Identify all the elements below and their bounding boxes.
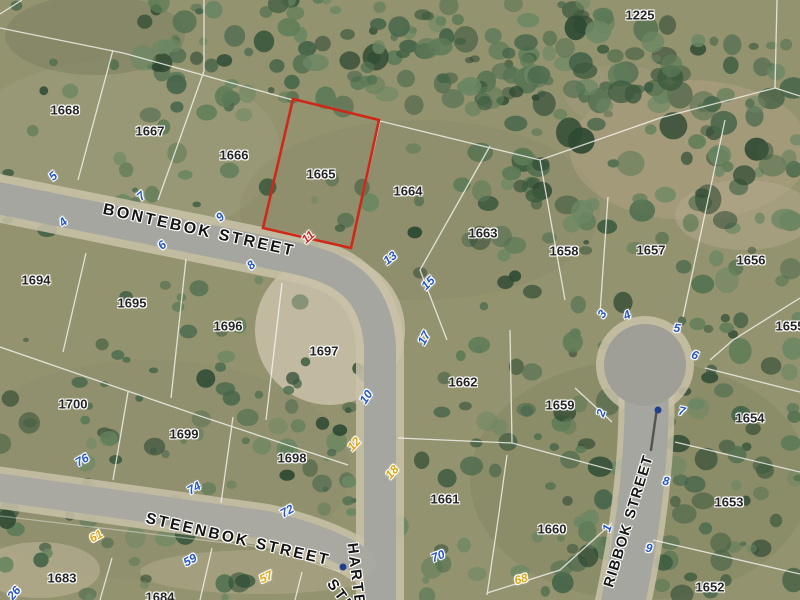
aerial-map-svg <box>0 0 800 600</box>
culdesac <box>604 324 686 406</box>
road-ribbok <box>621 372 647 600</box>
survey-dot <box>340 564 347 571</box>
map-canvas[interactable]: 1225166816671666166516641663165816571656… <box>0 0 800 600</box>
survey-dot <box>655 407 662 414</box>
